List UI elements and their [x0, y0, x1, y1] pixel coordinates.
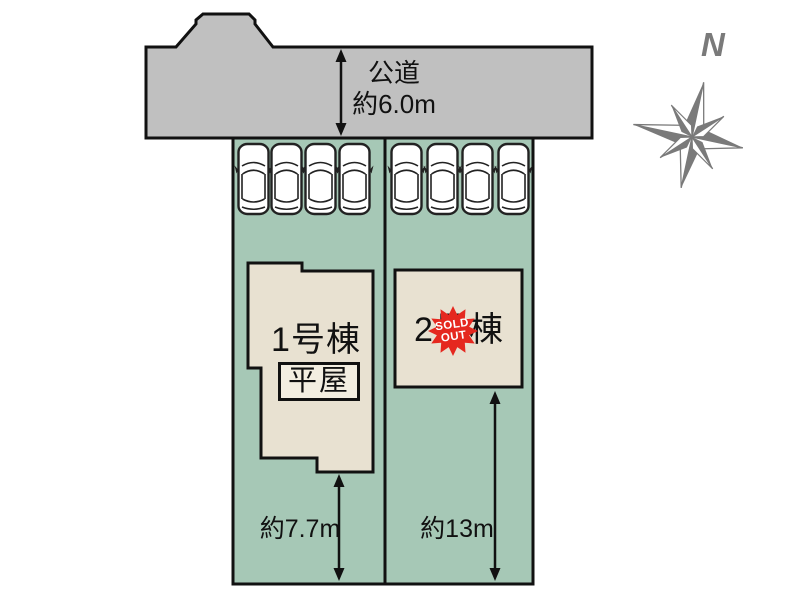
- car-icon: [459, 144, 497, 214]
- road-label: 公道 約6.0m: [344, 58, 444, 120]
- lot-1-depth-label: 約7.7m: [252, 509, 348, 545]
- building-1-type-box: 平屋: [278, 362, 360, 401]
- sold-out-text: SOLD OUT: [423, 301, 484, 362]
- building-1-label: 1号棟: [256, 322, 376, 358]
- car-icon: [495, 144, 533, 214]
- plot-plan-canvas: 公道 約6.0m 1号棟 平屋 2号棟 SOLD OUT 約7.7m 約13m …: [0, 0, 800, 600]
- compass-rose-icon: [622, 70, 754, 199]
- car-icon: [336, 144, 374, 214]
- car-icon: [424, 144, 462, 214]
- road-width-value: 約6.0m: [344, 89, 444, 120]
- sold-out-badge: SOLD OUT: [426, 304, 480, 358]
- road-name: 公道: [344, 58, 444, 89]
- lot-2-depth-label: 約13m: [409, 509, 505, 545]
- compass-north-label: N: [701, 26, 741, 64]
- sold-out-line2: OUT: [440, 329, 467, 344]
- car-icon: [235, 144, 273, 214]
- car-icon: [388, 144, 426, 214]
- car-icon: [268, 144, 306, 214]
- car-icon: [302, 144, 340, 214]
